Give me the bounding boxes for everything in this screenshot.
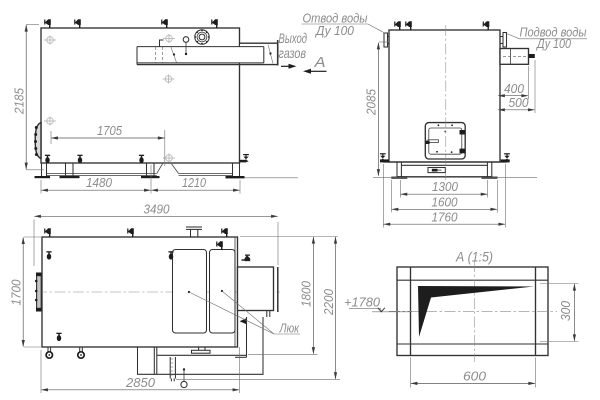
svg-text:1705: 1705: [97, 123, 123, 138]
svg-text:А (1:5): А (1:5): [455, 249, 493, 265]
svg-text:2200: 2200: [321, 288, 336, 316]
svg-text:+1780: +1780: [344, 295, 381, 310]
svg-text:2850: 2850: [125, 375, 156, 390]
svg-text:газов: газов: [279, 45, 307, 61]
svg-text:2085: 2085: [364, 88, 379, 116]
svg-text:1600: 1600: [432, 195, 459, 210]
svg-text:1300: 1300: [432, 179, 459, 194]
svg-text:1800: 1800: [299, 280, 314, 307]
svg-text:3490: 3490: [144, 202, 171, 217]
svg-text:2185: 2185: [12, 87, 27, 115]
svg-text:Ду 100: Ду 100: [314, 23, 355, 38]
svg-text:1700: 1700: [9, 279, 24, 306]
svg-text:1210: 1210: [182, 175, 207, 190]
svg-text:500: 500: [509, 95, 530, 110]
svg-text:Люк: Люк: [279, 321, 300, 336]
svg-text:600: 600: [463, 369, 487, 384]
svg-text:Ду 100: Ду 100: [535, 36, 571, 51]
svg-text:А: А: [313, 54, 325, 71]
svg-text:1760: 1760: [432, 210, 459, 225]
svg-text:400: 400: [504, 81, 525, 96]
svg-text:Выход: Выход: [279, 30, 308, 46]
svg-text:300: 300: [558, 300, 573, 321]
svg-text:1480: 1480: [86, 175, 113, 190]
